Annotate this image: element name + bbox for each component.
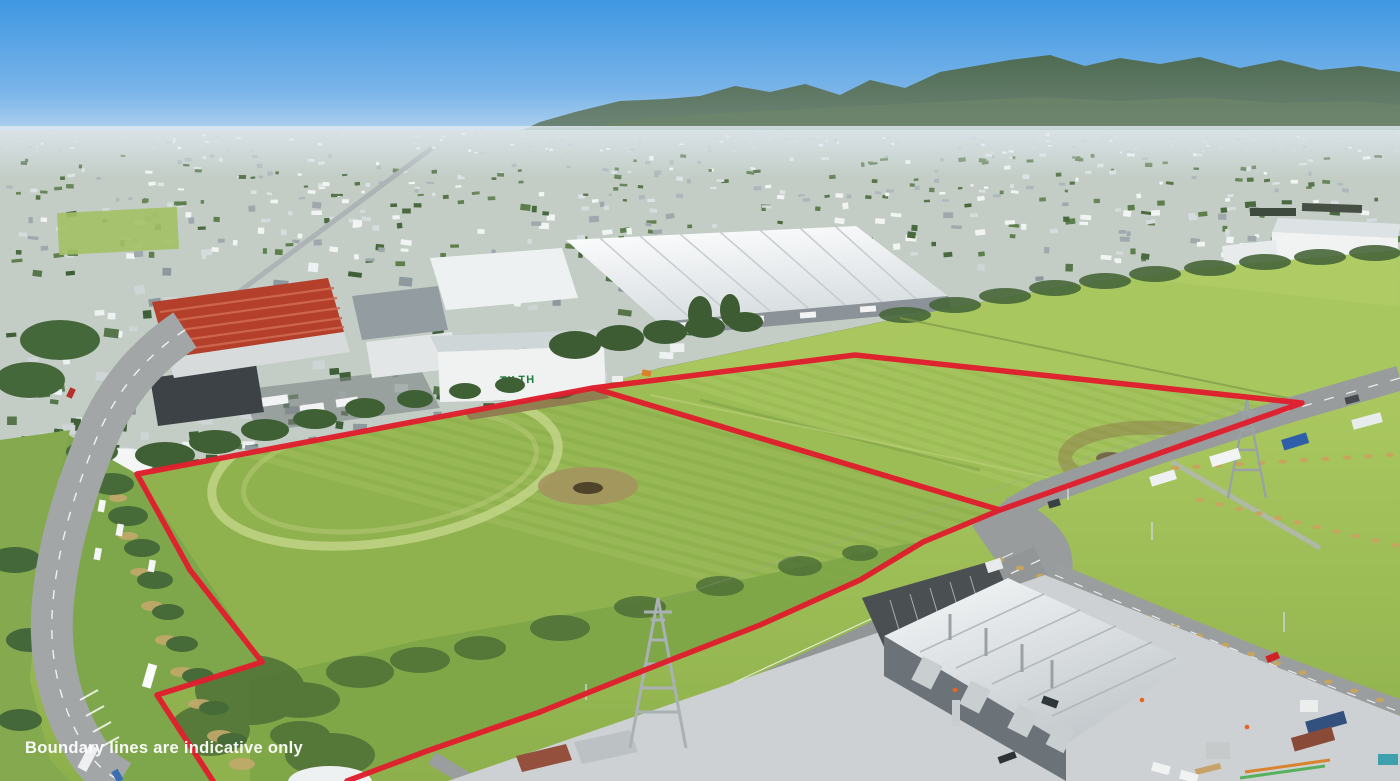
rooftop-speckle (19, 232, 27, 236)
rooftop-speckle (1127, 231, 1131, 236)
rooftop-speckle (1218, 214, 1226, 220)
rooftop-speckle (312, 202, 321, 209)
rooftop-speckle (218, 239, 225, 243)
rooftop-speckle (592, 199, 599, 203)
rooftop-speckle (366, 183, 370, 187)
rooftop-speckle (201, 200, 205, 204)
rooftop-speckle (1128, 205, 1135, 211)
rooftop-speckle (261, 219, 271, 223)
rooftop-speckle (28, 217, 33, 223)
rooftop-speckle (314, 239, 323, 245)
haze-band (0, 126, 1400, 178)
tussock-plant (1324, 679, 1332, 683)
rooftop-speckle (1059, 182, 1065, 185)
rooftop-speckle (129, 326, 138, 332)
rooftop-speckle (213, 217, 219, 222)
rooftop-speckle (1361, 210, 1369, 215)
rooftop-speckle (54, 186, 62, 190)
rooftop-speckle (970, 213, 978, 217)
tussock-plant (1196, 498, 1204, 502)
rooftop-speckle (934, 179, 939, 183)
rooftop-speckle (432, 193, 435, 197)
rooftop-speckle (659, 352, 673, 359)
rooftop-speckle (336, 194, 343, 197)
ute (612, 376, 623, 382)
rooftop-speckle (141, 432, 149, 440)
rooftop-speckle (308, 190, 316, 194)
rooftop-speckle (1342, 188, 1349, 192)
rooftop-speckle (402, 209, 411, 214)
tussock-plant (1371, 538, 1379, 542)
rooftop-speckle (1062, 202, 1068, 206)
rooftop-speckle (1291, 180, 1298, 184)
rooftop-speckle (647, 199, 655, 203)
rooftop-speckle (1274, 188, 1279, 192)
rooftop-speckle (415, 189, 419, 193)
rooftop-speckle (1130, 248, 1135, 254)
rooftop-speckle (128, 197, 132, 200)
rooftop-speckle (1063, 217, 1069, 222)
rooftop-speckle (914, 178, 919, 181)
rooftop-speckle (342, 199, 349, 203)
rooftop-speckle (519, 181, 524, 184)
rooftop-speckle (1235, 178, 1243, 182)
rooftop-speckle (670, 343, 685, 352)
rooftop-speckle (653, 229, 663, 234)
rooftop-speckle (687, 224, 692, 228)
rooftop-speckle (304, 185, 308, 187)
rooftop-speckle (66, 271, 75, 276)
rooftop-speckle (40, 190, 48, 193)
rooftop-speckle (1159, 181, 1162, 184)
rooftop-speckle (620, 184, 628, 187)
rooftop-speckle (1322, 180, 1330, 184)
rooftop-speckle (777, 195, 785, 200)
rooftop-speckle (16, 250, 22, 255)
rooftop-speckle (162, 268, 171, 276)
tussock-plant (1352, 534, 1360, 538)
rooftop-speckle (355, 182, 361, 186)
rooftop-speckle (929, 188, 935, 193)
rooftop-speckle (41, 217, 48, 222)
rooftop-speckle (777, 221, 783, 225)
rooftop-speckle (66, 184, 74, 189)
rooftop-speckle (108, 313, 116, 320)
rooftop-speckle (143, 310, 152, 319)
rooftop-speckle (1116, 251, 1123, 254)
tussock-plant (1332, 529, 1340, 533)
rooftop-speckle (1116, 258, 1122, 263)
rooftop-speckle (354, 254, 359, 260)
boundary-disclaimer-text: Boundary lines are indicative only (25, 739, 303, 757)
rooftop-speckle (911, 225, 917, 231)
rooftop-speckle (395, 261, 405, 266)
tussock-plant (1293, 520, 1301, 524)
tussock-plant (1235, 462, 1243, 466)
rooftop-speckle (409, 182, 415, 185)
rooftop-speckle (842, 202, 848, 209)
rooftop-speckle (1247, 178, 1254, 182)
rooftop-speckle (365, 258, 374, 261)
rooftop-speckle (1225, 198, 1230, 202)
rooftop-speckle (397, 223, 403, 229)
rooftop-speckle (1065, 190, 1069, 193)
rooftop-speckle (1005, 220, 1015, 225)
tussock-plant (1313, 525, 1321, 529)
rooftop-speckle (1065, 264, 1073, 272)
rooftop-speckle (1282, 200, 1292, 204)
rooftop-speckle (872, 179, 878, 183)
rooftop-speckle (970, 184, 973, 186)
rooftop-speckle (977, 264, 985, 271)
rooftop-speckle (1151, 210, 1160, 216)
rooftop-speckle (907, 231, 916, 238)
rooftop-speckle (1101, 255, 1112, 260)
rooftop-speckle (360, 210, 365, 213)
rooftop-speckle (311, 211, 321, 215)
rooftop-speckle (1010, 234, 1016, 238)
rooftop-speckle (188, 217, 194, 224)
rooftop-speckle (910, 183, 915, 187)
rooftop-speckle (975, 229, 985, 235)
rooftop-speckle (1035, 276, 1043, 281)
rooftop-speckle (1374, 198, 1378, 202)
rooftop-speckle (924, 200, 930, 203)
rooftop-speckle (399, 277, 413, 287)
sports-field (57, 207, 179, 255)
rooftop-speckle (613, 187, 618, 191)
rooftop-speckle (847, 194, 852, 198)
rooftop-speckle (676, 194, 683, 198)
rooftop-speckle (1308, 182, 1315, 187)
rooftop-speckle (939, 192, 945, 195)
rooftop-speckle (455, 185, 461, 188)
rooftop-speckle (401, 248, 409, 251)
small-shed (1206, 742, 1230, 759)
tussock-plant (1391, 543, 1399, 547)
rooftop-speckle (288, 211, 293, 216)
rooftop-speckle (915, 186, 920, 191)
rooftop-speckle (275, 249, 283, 255)
rooftop-speckle (202, 253, 207, 259)
tussock-plant (1016, 566, 1024, 570)
scaffold-hoist (952, 700, 960, 726)
rooftop-speckle (36, 195, 41, 200)
rooftop-speckle (583, 194, 588, 197)
rooftop-speckle (281, 229, 287, 235)
rooftop-speckle (458, 200, 465, 204)
site-hut (1300, 700, 1318, 712)
rooftop-speckle (528, 305, 538, 311)
tussock-plant (1171, 466, 1179, 470)
aerial-photo: TILTH Direct (0, 0, 1400, 781)
rooftop-speckle (258, 228, 265, 234)
rooftop-speckle (116, 198, 119, 202)
rooftop-speckle (581, 206, 589, 210)
rooftop-speckle (329, 368, 339, 375)
rooftop-speckle (392, 215, 400, 220)
teal-tank (1378, 754, 1398, 765)
rooftop-speckle (1157, 200, 1165, 205)
rooftop-speckle (335, 421, 343, 430)
rooftop-speckle (1225, 229, 1230, 236)
tussock-plant (1386, 453, 1394, 457)
rooftop-speckle (248, 205, 255, 212)
tussock-plant (1298, 670, 1306, 674)
rooftop-speckle (815, 206, 821, 211)
rooftop-speckle (754, 186, 762, 191)
tussock-plant (1215, 502, 1223, 506)
rooftop-speckle (353, 220, 362, 226)
rooftop-speckle (176, 201, 187, 206)
rooftop-speckle (1079, 222, 1088, 225)
rooftop-speckle (263, 248, 267, 254)
rooftop-speckle (443, 195, 449, 200)
rooftop-speckle (30, 188, 37, 192)
rooftop-speckle (1010, 184, 1014, 188)
rooftop-speckle (41, 246, 49, 251)
tussock-plant (1274, 516, 1282, 520)
rooftop-speckle (958, 187, 962, 190)
tussock-plant (1300, 458, 1308, 462)
rooftop-speckle (104, 328, 120, 339)
rooftop-speckle (1050, 229, 1058, 234)
rooftop-speckle (765, 185, 771, 189)
rooftop-speckle (626, 228, 632, 235)
rooftop-speckle (134, 251, 144, 258)
rooftop-speckle (527, 239, 532, 244)
rooftop-speckle (71, 418, 81, 423)
rooftop-speckle (1026, 186, 1034, 190)
tussock-plant (1350, 689, 1358, 693)
rooftop-speckle (943, 252, 952, 258)
rooftop-speckle (520, 204, 531, 212)
rooftop-speckle (450, 244, 459, 247)
rooftop-speckle (761, 208, 765, 211)
rooftop-speckle (893, 243, 901, 250)
rooftop-speckle (609, 194, 612, 197)
rooftop-speckle (1136, 193, 1141, 198)
aerial-photo-canvas: TILTH Direct (0, 0, 1400, 781)
rooftop-speckle (645, 222, 651, 226)
rooftop-speckle (198, 226, 206, 230)
tussock-plant (1272, 661, 1280, 665)
container-row (1250, 208, 1296, 216)
rooftop-speckle (712, 224, 717, 228)
rooftop-speckle (542, 211, 549, 216)
rooftop-speckle (623, 199, 627, 202)
rooftop-speckle (687, 179, 691, 184)
rooftop-speckle (984, 186, 989, 189)
rooftop-speckle (1075, 178, 1078, 182)
rooftop-speckle (211, 247, 218, 252)
rooftop-speckle (1094, 199, 1100, 203)
tussock-plant (1235, 507, 1243, 511)
rooftop-speckle (589, 216, 599, 223)
rooftop-speckle (1080, 215, 1091, 221)
rooftop-speckle (779, 190, 785, 195)
rooftop-speckle (553, 299, 561, 305)
rooftop-speckle (16, 192, 21, 195)
rooftop-speckle (1226, 236, 1234, 243)
rooftop-speckle (964, 203, 971, 207)
rooftop-speckle (185, 212, 191, 218)
rooftop-speckle (835, 193, 843, 197)
rooftop-speckle (910, 252, 918, 255)
rooftop-speckle (1000, 191, 1004, 195)
rooftop-speckle (32, 270, 42, 277)
rooftop-speckle (95, 310, 105, 316)
rooftop-speckle (1021, 224, 1026, 230)
rooftop-speckle (1115, 208, 1121, 212)
rooftop-speckle (1197, 242, 1205, 247)
tussock-plant (1364, 454, 1372, 458)
rooftop-speckle (951, 225, 962, 229)
rooftop-speckle (885, 193, 889, 197)
tussock-plant (1278, 459, 1286, 463)
tussock-plant (1192, 465, 1200, 469)
rooftop-speckle (7, 417, 17, 426)
rooftop-speckle (532, 206, 537, 213)
rooftop-speckle (271, 200, 278, 204)
tussock-plant (1254, 511, 1262, 515)
rooftop-speckle (361, 191, 365, 194)
rooftop-speckle (477, 229, 484, 234)
rooftop-speckle (803, 198, 810, 202)
rooftop-speckle (604, 205, 609, 210)
rooftop-speckle (440, 253, 446, 257)
rooftop-speckle (308, 262, 319, 272)
rooftop-speckle (390, 203, 397, 207)
rooftop-speckle (1247, 236, 1256, 242)
rooftop-speckle (710, 187, 717, 189)
rooftop-speckle (649, 209, 657, 213)
rooftop-speckle (875, 218, 885, 224)
rooftop-speckle (638, 185, 644, 189)
rooftop-speckle (1141, 253, 1150, 260)
tussock-plant (1376, 698, 1384, 702)
rooftop-speckle (942, 199, 949, 202)
rooftop-speckle (716, 179, 724, 181)
rooftop-speckle (134, 285, 145, 295)
rooftop-speckle (1070, 182, 1075, 185)
rooftop-speckle (178, 188, 184, 190)
rooftop-speckle (1123, 210, 1132, 217)
rooftop-speckle (639, 195, 645, 200)
rooftop-speckle (414, 203, 422, 207)
rooftop-speckle (886, 189, 894, 192)
rooftop-speckle (158, 183, 165, 186)
rooftop-speckle (865, 195, 871, 199)
rooftop-speckle (1044, 247, 1050, 254)
rooftop-speckle (993, 194, 1001, 197)
rooftop-speckle (1120, 237, 1130, 242)
rooftop-speckle (322, 182, 329, 187)
rooftop-speckle (1039, 197, 1046, 201)
rooftop-speckle (372, 225, 379, 231)
rooftop-speckle (539, 192, 544, 196)
rooftop-speckle (378, 247, 385, 252)
rooftop-speckle (1221, 207, 1228, 212)
rooftop-speckle (286, 243, 294, 246)
rooftop-speckle (312, 360, 325, 369)
rooftop-speckle (331, 194, 337, 198)
rooftop-speckle (126, 253, 135, 259)
rooftop-speckle (233, 240, 238, 246)
rooftop-speckle (488, 196, 496, 200)
rooftop-speckle (6, 332, 17, 337)
rooftop-speckle (149, 252, 155, 258)
rooftop-speckle (251, 190, 257, 194)
rooftop-speckle (531, 221, 541, 225)
rooftop-speckle (6, 186, 12, 189)
rooftop-speckle (978, 251, 985, 256)
tussock-plant (1343, 455, 1351, 459)
rooftop-speckle (297, 233, 302, 238)
rooftop-speckle (1119, 230, 1126, 234)
rooftop-speckle (1188, 213, 1195, 218)
tussock-plant (1321, 457, 1329, 461)
rooftop-speckle (931, 242, 936, 246)
rooftop-speckle (329, 246, 338, 252)
rooftop-speckle (943, 212, 953, 218)
rooftop-speckle (142, 199, 147, 203)
